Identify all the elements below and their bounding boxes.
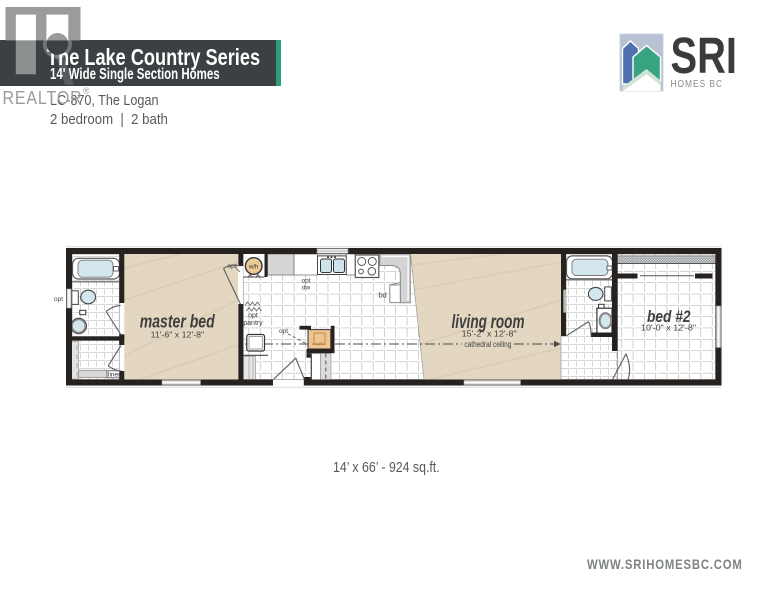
svg-text:w/h: w/h xyxy=(248,264,258,270)
svg-text:opt: opt xyxy=(301,278,310,285)
svg-text:dw: dw xyxy=(302,285,311,292)
svg-text:pantry: pantry xyxy=(243,320,263,327)
svg-text:opt: opt xyxy=(279,328,288,335)
svg-text:master bed: master bed xyxy=(140,312,216,332)
svg-text:10'-0" x 12'-8": 10'-0" x 12'-8" xyxy=(641,323,696,333)
svg-text:opt: opt xyxy=(54,296,63,303)
svg-text:11'-6" x 12'-8": 11'-6" x 12'-8" xyxy=(151,330,205,340)
svg-text:opt: opt xyxy=(227,263,236,270)
svg-text:opt: opt xyxy=(248,313,258,320)
svg-text:15'-2" x 12'-8": 15'-2" x 12'-8" xyxy=(462,329,517,339)
svg-text:bd: bd xyxy=(378,291,386,300)
svg-text:cathedral ceiling: cathedral ceiling xyxy=(464,340,511,349)
